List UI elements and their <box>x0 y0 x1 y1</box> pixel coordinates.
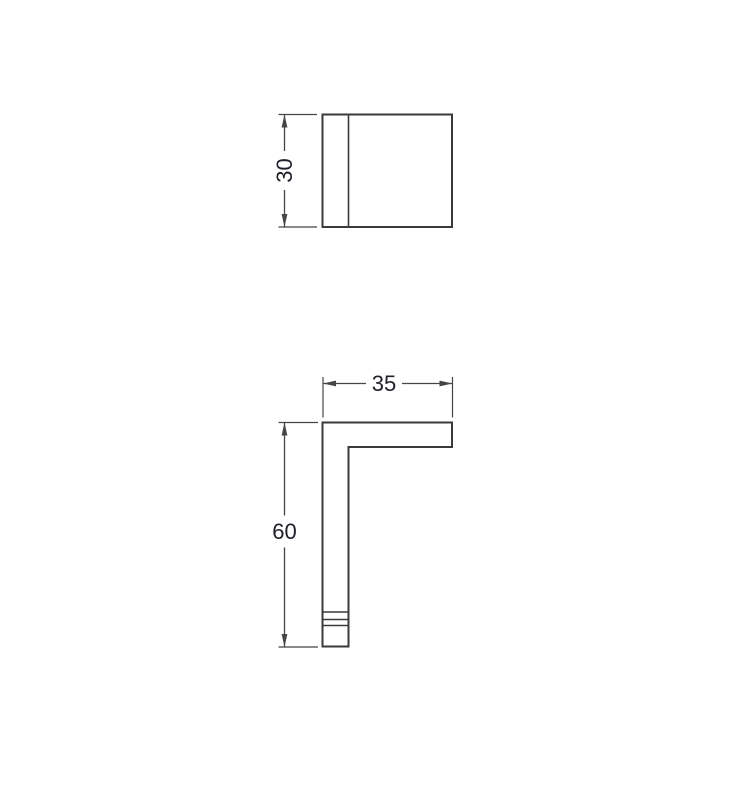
dim-30-label: 30 <box>272 158 297 182</box>
dim-35-arrow-right-icon <box>440 381 453 387</box>
top-view-outline <box>323 115 453 228</box>
dim-60-arrow-up-icon <box>282 423 288 436</box>
dimension-30: 30 <box>272 115 317 228</box>
dim-35-arrow-left-icon <box>323 381 336 387</box>
dim-35-label: 35 <box>372 371 396 396</box>
top-view <box>323 115 453 228</box>
dim-30-arrow-down-icon <box>282 214 288 227</box>
dim-30-arrow-up-icon <box>282 115 288 128</box>
dimension-35: 35 <box>323 371 453 417</box>
side-view <box>323 423 453 647</box>
dim-60-label: 60 <box>272 519 296 544</box>
dim-60-arrow-down-icon <box>282 634 288 647</box>
technical-drawing: 30 35 60 <box>0 0 733 800</box>
side-view-outline <box>323 423 453 647</box>
dimension-60: 60 <box>272 423 318 648</box>
drawing-canvas: 30 35 60 <box>0 0 733 800</box>
